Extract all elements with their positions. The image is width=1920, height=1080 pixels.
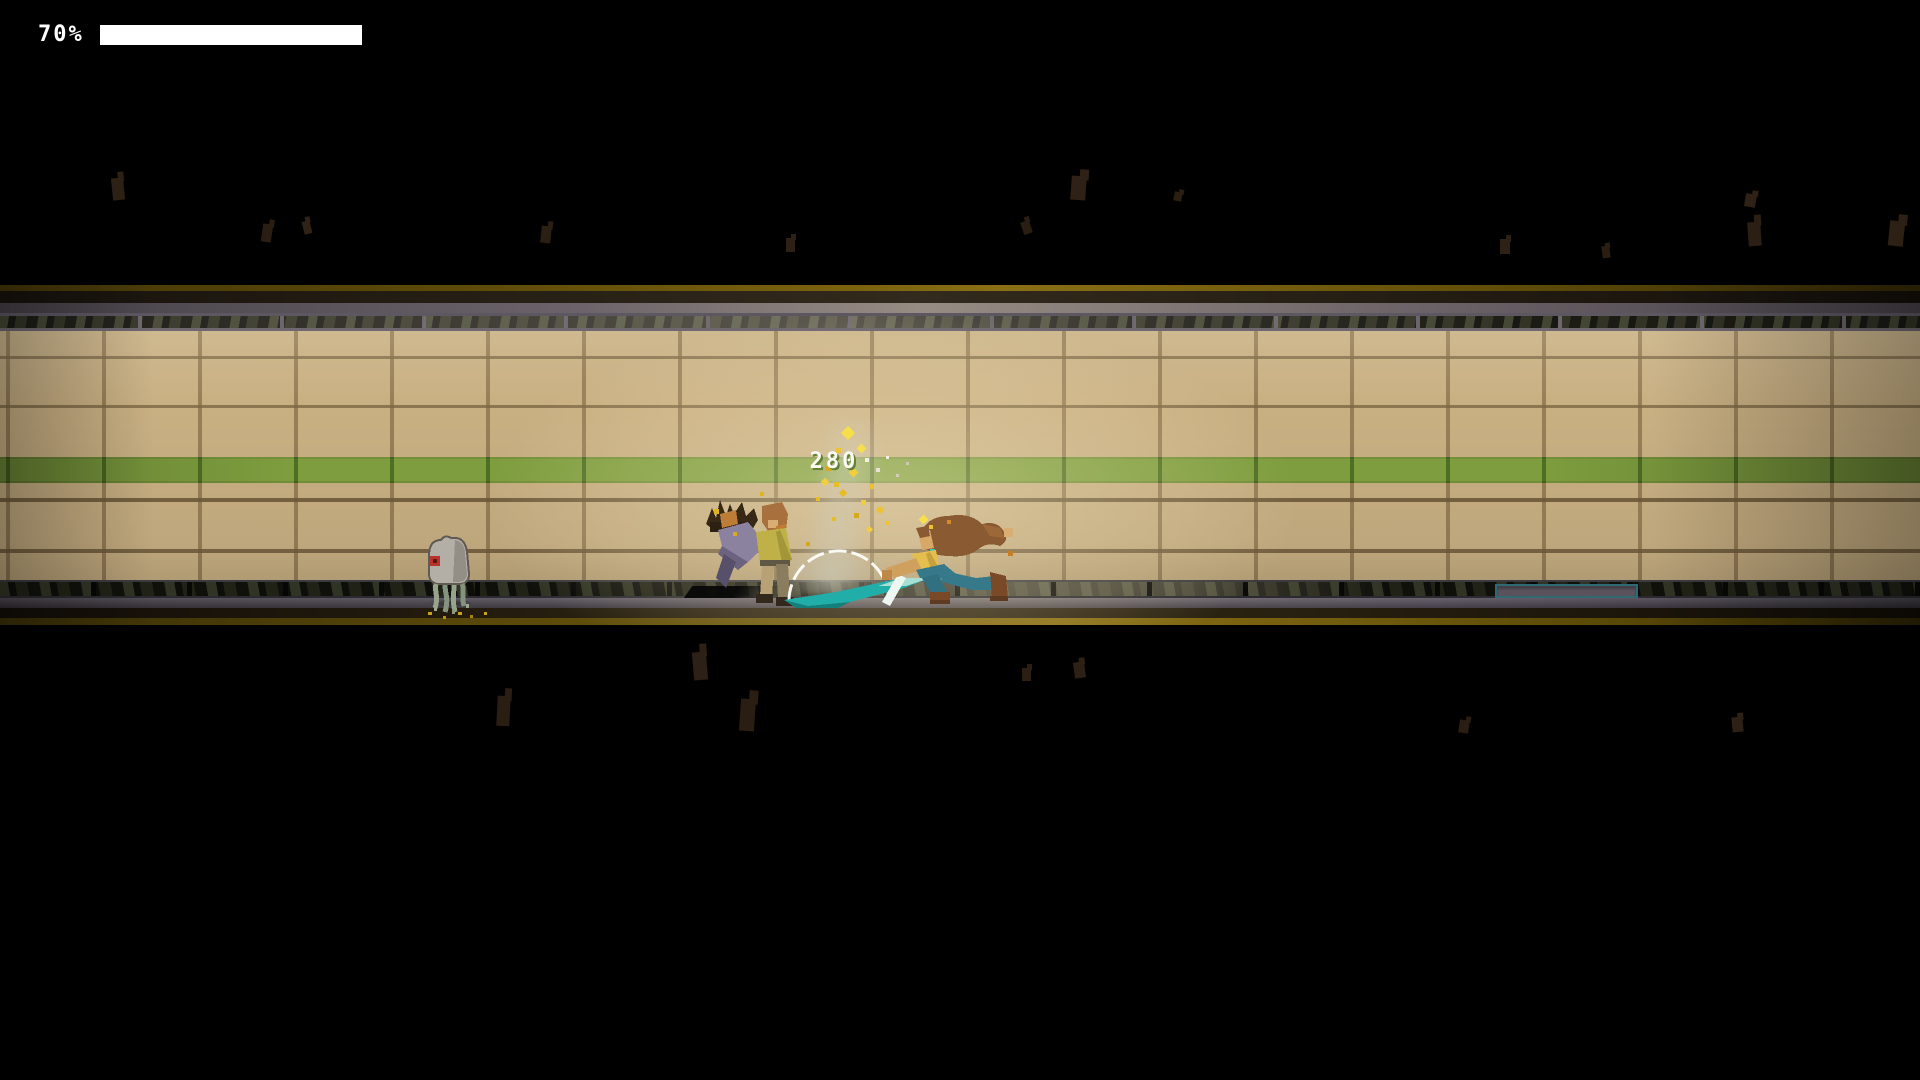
health-bar xyxy=(100,25,362,45)
debris-chunk xyxy=(302,220,313,235)
debris-chunk xyxy=(1073,661,1086,678)
station-top-dark-band xyxy=(0,291,1920,303)
debris-chunk xyxy=(1601,246,1611,259)
debris-chunk xyxy=(1022,668,1031,681)
player-character xyxy=(878,512,1014,616)
health-percent-label: 70% xyxy=(38,22,84,47)
health-bar-fill xyxy=(100,25,362,45)
debris-chunk xyxy=(786,238,795,252)
debris-chunk xyxy=(1500,239,1510,254)
station-bottom-gold-trim xyxy=(0,618,1920,625)
debris-chunk xyxy=(739,699,756,732)
debris-chunk xyxy=(1888,220,1906,246)
debris-chunk xyxy=(1070,176,1087,201)
debris-chunk xyxy=(1020,220,1033,235)
damage-number: 280 xyxy=(792,449,876,474)
debris-chunk xyxy=(1173,191,1183,201)
small-alien-creature xyxy=(421,532,479,616)
platform-light-panel xyxy=(1495,584,1638,598)
debris-chunk xyxy=(692,651,708,680)
debris-chunk xyxy=(1458,719,1470,733)
debris-chunk xyxy=(111,177,125,200)
game-viewport[interactable]: 280 70% xyxy=(0,0,1920,1080)
station-top-gray-band xyxy=(0,303,1920,313)
debris-chunk xyxy=(1744,193,1757,208)
debris-chunk xyxy=(261,223,273,242)
station-green-stripe xyxy=(0,457,1920,483)
debris-chunk xyxy=(540,226,552,244)
debris-chunk xyxy=(1731,717,1743,733)
station-ceiling-panels xyxy=(0,313,1920,331)
debris-chunk xyxy=(496,696,511,727)
debris-chunk xyxy=(1747,222,1762,247)
